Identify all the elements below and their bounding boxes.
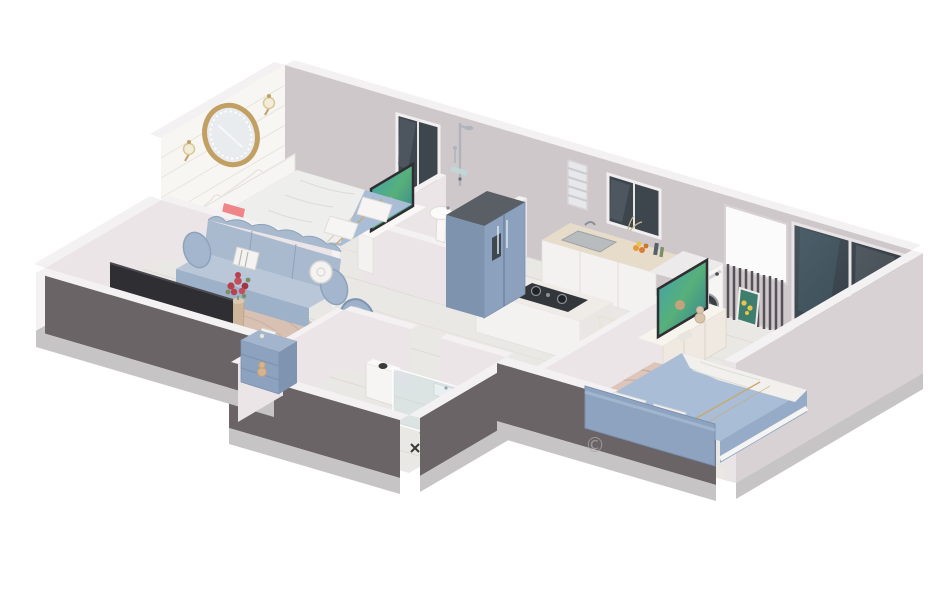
floorplan-canvas: © [0, 0, 945, 615]
blue-cabinet [241, 330, 297, 394]
louver-vent [568, 160, 587, 210]
fridge [446, 191, 525, 318]
round-pillow [310, 261, 332, 283]
sunflower-picture [737, 288, 759, 326]
teddy-on-floor [258, 362, 267, 377]
copyright-watermark: © [585, 433, 605, 457]
floorplan-render: © [0, 0, 945, 615]
teddy [695, 307, 705, 324]
